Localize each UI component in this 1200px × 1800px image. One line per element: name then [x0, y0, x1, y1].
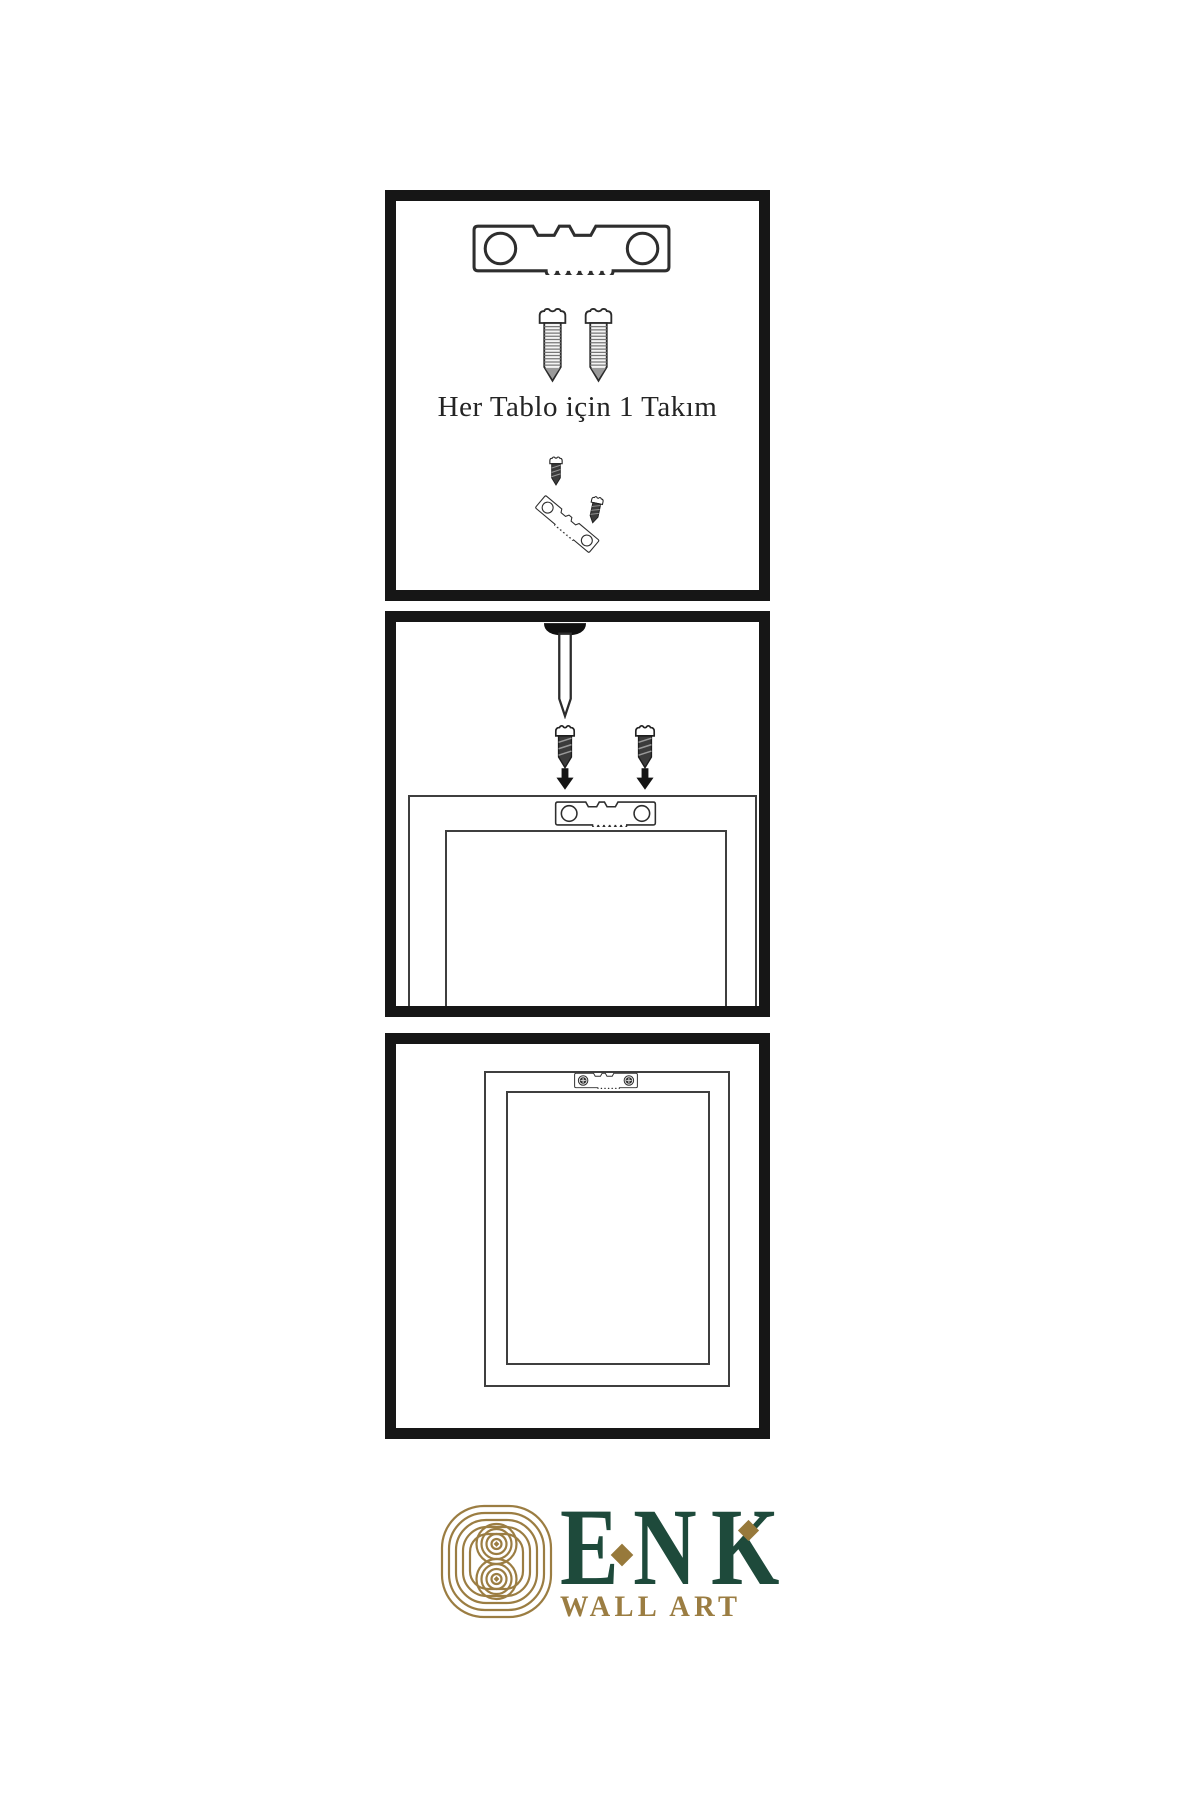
mounted-sawtooth-hanger-icon [573, 1072, 639, 1089]
frame-back-inner-outline [445, 830, 727, 1006]
screw-icon [585, 494, 606, 525]
step-panel-2 [385, 611, 770, 1017]
instruction-sheet: Her Tablo için 1 Takım ENK WALL ART [0, 0, 1200, 1800]
step-panel-1: Her Tablo için 1 Takım [385, 190, 770, 601]
arrow-down-icon [636, 768, 654, 790]
brand-wordmark: ENK [560, 1492, 794, 1602]
screw-icon [582, 306, 615, 384]
arrow-down-icon [556, 768, 574, 790]
sawtooth-hanger-icon [470, 222, 673, 275]
knot-logo-icon [440, 1500, 553, 1623]
screw-icon [536, 306, 569, 384]
sawtooth-hanger-icon [553, 800, 658, 827]
brand-tagline: WALL ART [560, 1592, 741, 1622]
step1-caption: Her Tablo için 1 Takım [396, 391, 759, 424]
screw-icon [553, 723, 577, 769]
screw-icon [633, 723, 657, 769]
screw-icon [548, 455, 564, 486]
picture-frame-inner [506, 1091, 710, 1365]
step-panel-3 [385, 1033, 770, 1439]
nail-icon [543, 623, 587, 719]
